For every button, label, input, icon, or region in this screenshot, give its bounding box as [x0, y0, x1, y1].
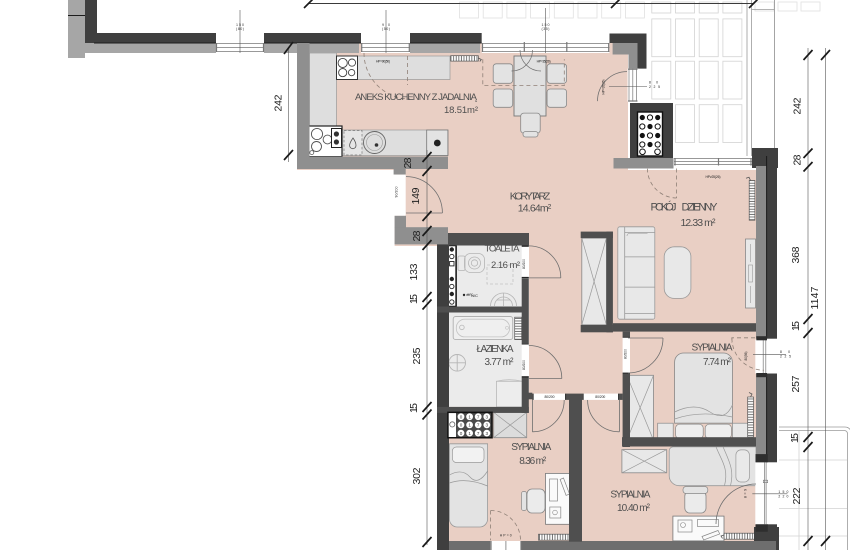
svg-text:149: 149: [410, 187, 422, 204]
svg-text:242: 242: [792, 97, 804, 114]
svg-text:235: 235: [411, 347, 423, 364]
svg-text:3: 3: [486, 431, 489, 436]
svg-text:10.40 m²: 10.40 m²: [617, 503, 651, 514]
svg-text:POKÓJ: POKÓJ: [651, 201, 677, 214]
svg-text:18.51m²: 18.51m²: [444, 105, 478, 116]
svg-text:7.74 m²: 7.74 m²: [703, 357, 732, 368]
svg-text:28: 28: [792, 154, 804, 165]
svg-text:ŁAZIENKA: ŁAZIENKA: [477, 344, 514, 355]
svg-text:DZIENNY: DZIENNY: [682, 202, 719, 214]
svg-text:28: 28: [402, 157, 414, 168]
svg-text:15: 15: [789, 433, 801, 443]
svg-text:133: 133: [408, 263, 420, 280]
svg-text:● w/c: ● w/c: [463, 293, 473, 297]
svg-text:242: 242: [273, 94, 285, 111]
svg-text:(80): (80): [236, 27, 244, 31]
svg-text:80/200: 80/200: [522, 360, 526, 370]
svg-text:90/200: 90/200: [395, 186, 399, 197]
svg-text:0: 0: [460, 414, 463, 419]
svg-text:(35): (35): [542, 27, 550, 31]
svg-text:3: 3: [486, 423, 489, 428]
svg-text:15: 15: [408, 294, 420, 304]
svg-text:220: 220: [778, 495, 788, 499]
svg-text:SYPIALNIA: SYPIALNIA: [692, 342, 733, 353]
svg-text:7: 7: [477, 431, 480, 436]
svg-text:80/200: 80/200: [545, 395, 555, 399]
svg-text:225: 225: [780, 355, 791, 359]
svg-text:8=9: 8=9: [744, 489, 748, 498]
svg-text:(50): (50): [382, 27, 390, 31]
svg-text:80/200: 80/200: [522, 259, 526, 269]
svg-text:80/200: 80/200: [595, 395, 605, 399]
svg-text:2.16 m²: 2.16 m²: [491, 260, 520, 271]
svg-text:0: 0: [460, 423, 463, 428]
svg-text:TOALETA: TOALETA: [485, 244, 521, 255]
svg-text:15: 15: [790, 321, 802, 331]
svg-text:3.77 m²: 3.77 m²: [485, 357, 515, 368]
svg-text:HPv25(26): HPv25(26): [706, 175, 721, 179]
svg-text:1: 1: [468, 414, 471, 419]
svg-text:14.64m²: 14.64m²: [518, 203, 552, 215]
svg-text:15: 15: [408, 403, 420, 413]
svg-text:KORYTARZ: KORYTARZ: [510, 190, 551, 202]
svg-text:ANEKS KUCHENNY Z JADALNIĄ: ANEKS KUCHENNY Z JADALNIĄ: [355, 92, 478, 103]
svg-text:HP=35(26): HP=35(26): [602, 80, 606, 95]
svg-text:302: 302: [411, 467, 423, 484]
svg-text:8.36 m²: 8.36 m²: [519, 456, 547, 467]
svg-text:0: 0: [460, 431, 463, 436]
svg-text:HP=90(50): HP=90(50): [376, 60, 390, 64]
svg-text:SYPIALNIA: SYPIALNIA: [610, 490, 650, 501]
svg-text:HP=0: HP=0: [500, 534, 512, 538]
svg-text:3: 3: [486, 414, 489, 419]
svg-text:222: 222: [791, 487, 803, 504]
svg-text:1: 1: [468, 431, 471, 436]
svg-text:SYPIALNIA: SYPIALNIA: [511, 442, 551, 453]
svg-text:368: 368: [790, 246, 802, 263]
svg-text:150: 150: [778, 490, 788, 494]
svg-text:80/200: 80/200: [623, 349, 627, 359]
svg-text:28: 28: [411, 230, 423, 241]
svg-text:257: 257: [790, 375, 802, 392]
svg-text:80(56): 80(56): [744, 352, 748, 361]
svg-text:225: 225: [649, 85, 660, 89]
svg-text:7: 7: [477, 423, 480, 428]
svg-text:1: 1: [468, 423, 471, 428]
svg-text:1147: 1147: [809, 286, 821, 309]
svg-text:7: 7: [477, 414, 480, 419]
svg-text:12.33 m²: 12.33 m²: [681, 217, 717, 229]
svg-text:HP=35(26): HP=35(26): [537, 59, 551, 63]
